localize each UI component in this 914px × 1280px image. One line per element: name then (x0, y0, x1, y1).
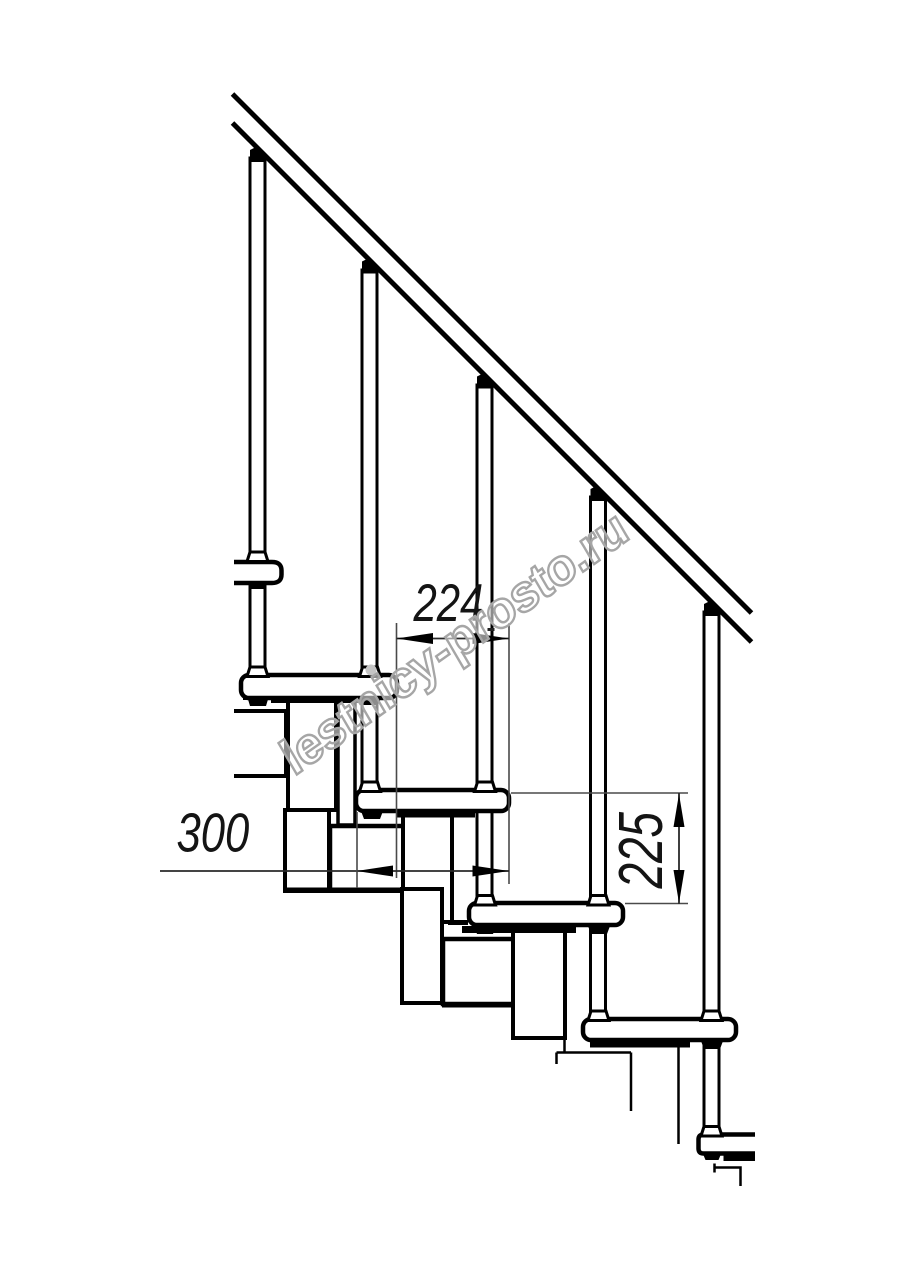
svg-text:300: 300 (177, 803, 250, 864)
svg-text:225: 225 (606, 811, 675, 889)
